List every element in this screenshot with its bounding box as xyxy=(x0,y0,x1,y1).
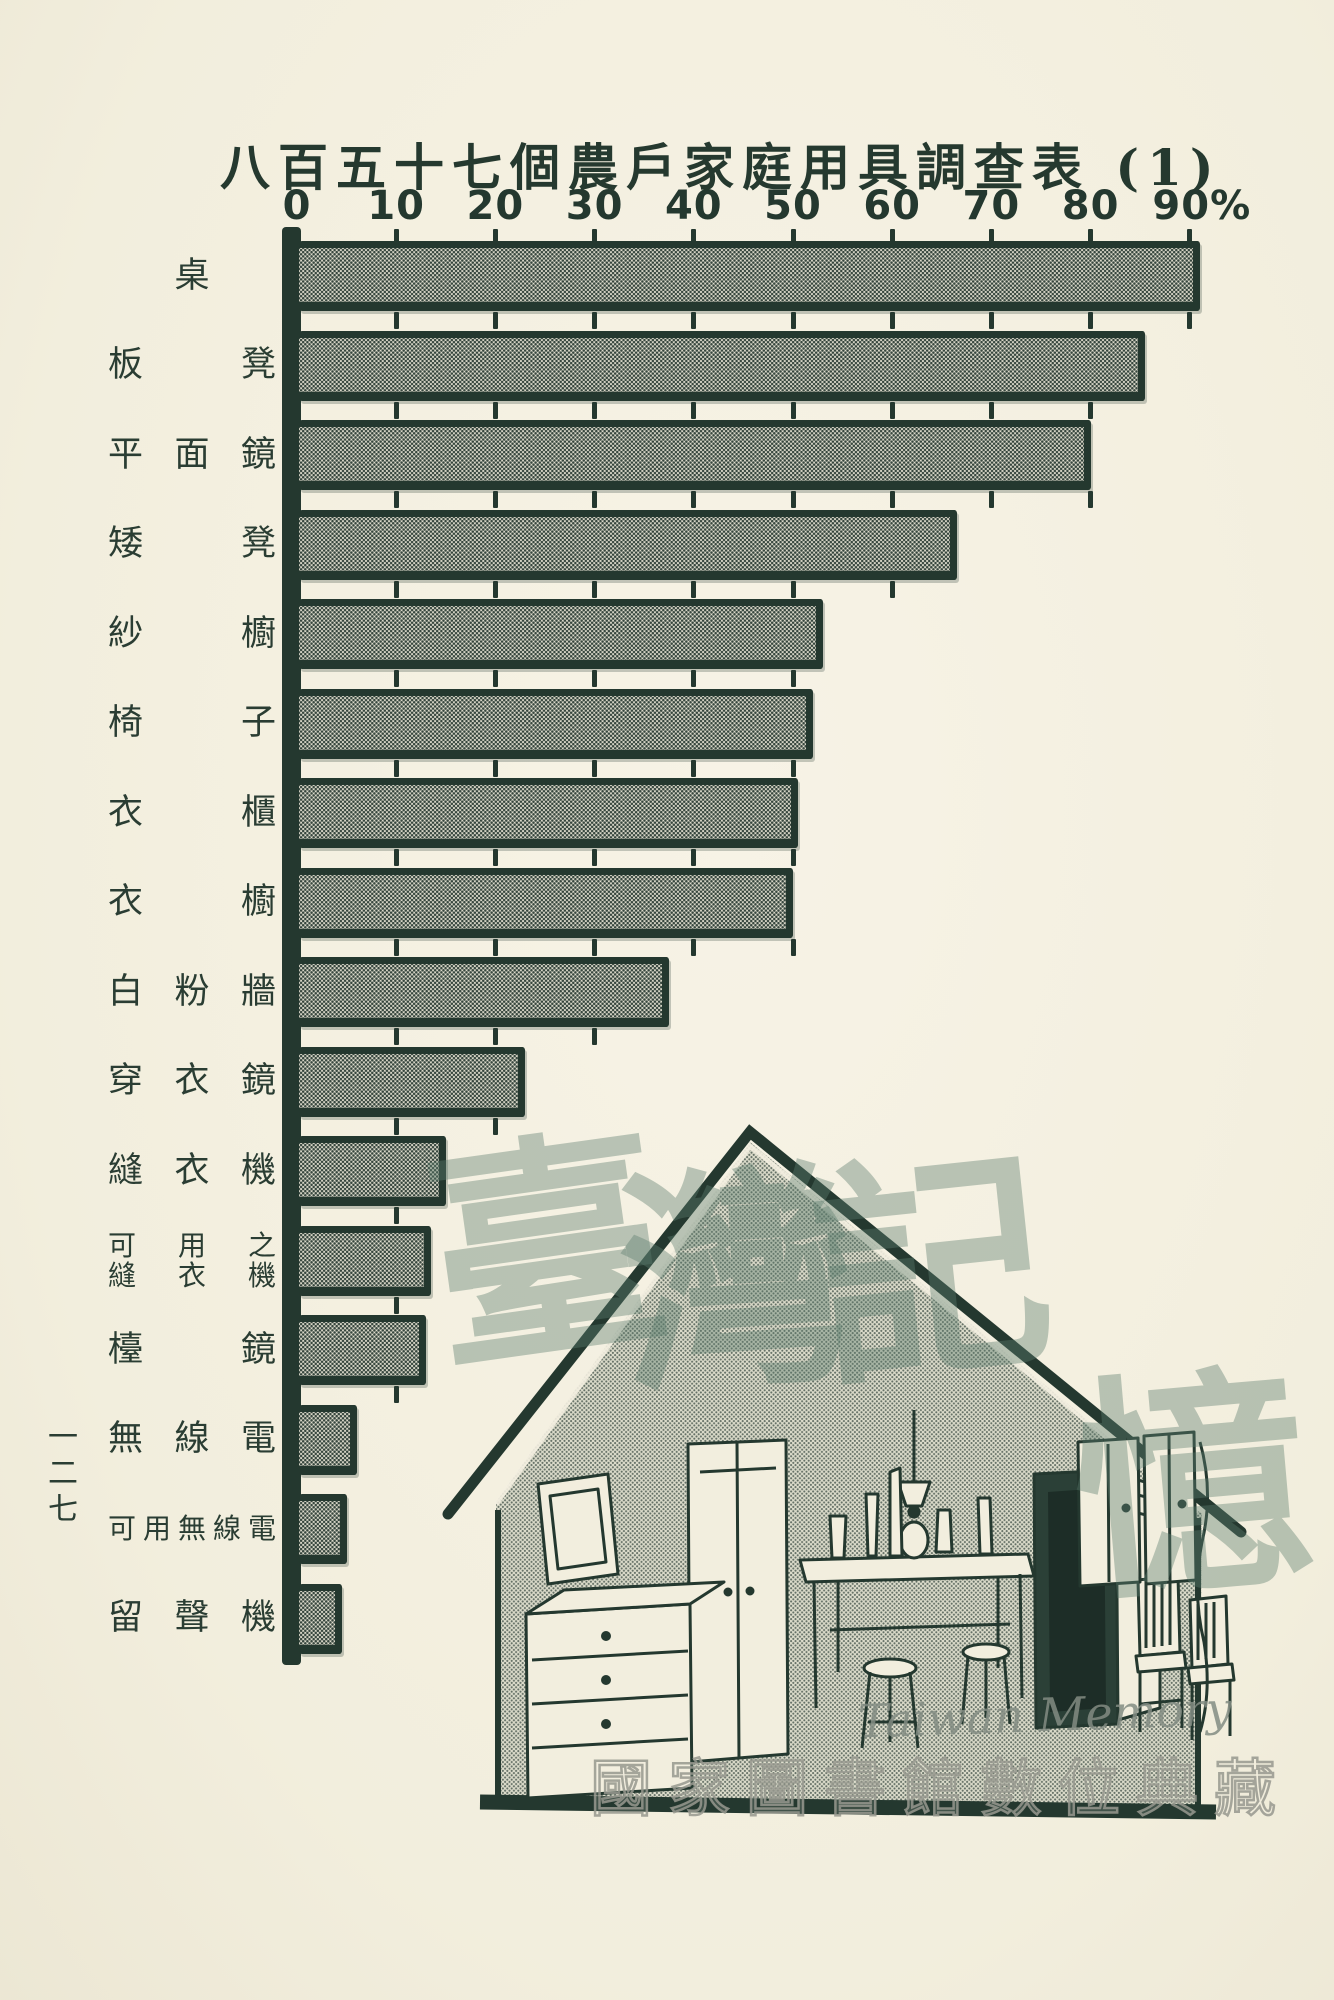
gap-tick xyxy=(493,1028,498,1045)
label-char: 機 xyxy=(248,1261,276,1290)
label-char: 機 xyxy=(241,1153,276,1190)
label-char: 凳 xyxy=(241,347,276,384)
bar-category-label: 縫衣機 xyxy=(108,1136,276,1206)
gap-tick xyxy=(493,402,498,419)
label-char: 縫 xyxy=(108,1153,143,1190)
gap-tick xyxy=(691,760,696,777)
label-char: 櫥 xyxy=(241,884,276,921)
label-char: 平 xyxy=(108,437,143,474)
gap-tick xyxy=(394,402,399,419)
label-char: 鏡 xyxy=(241,1332,276,1369)
label-char: 電 xyxy=(248,1514,276,1543)
gap-tick xyxy=(791,670,796,687)
gap-tick xyxy=(691,939,696,956)
gap-tick xyxy=(1088,312,1093,329)
axis-tick-label: 50 xyxy=(764,183,822,229)
label-char: 櫃 xyxy=(241,795,276,832)
bar-category-label: 矮凳 xyxy=(108,510,276,580)
axis-tick-label: 0 xyxy=(283,183,312,229)
gap-tick xyxy=(890,402,895,419)
gap-tick xyxy=(493,581,498,598)
label-char: 線 xyxy=(174,1421,209,1458)
gap-tick xyxy=(394,849,399,866)
label-char: 機 xyxy=(241,1600,276,1637)
axis-tick-label: 30 xyxy=(566,183,624,229)
label-char: 白 xyxy=(108,974,143,1011)
page-number-char: 一 xyxy=(48,1420,78,1456)
label-char: 椅 xyxy=(108,705,143,742)
bar-category-label: 板凳 xyxy=(108,331,276,401)
label-char: 櫥 xyxy=(241,616,276,653)
gap-tick xyxy=(394,1207,399,1224)
gap-tick xyxy=(592,1028,597,1045)
gap-tick xyxy=(493,939,498,956)
bar-category-label: 桌 xyxy=(108,241,276,311)
label-char: 衣 xyxy=(108,795,143,832)
label-char: 凳 xyxy=(241,526,276,563)
bar xyxy=(299,510,957,580)
wardrobe-panels xyxy=(1078,1432,1196,1586)
bar-category-label: 白粉牆 xyxy=(108,957,276,1027)
page-number-char: 二 xyxy=(48,1456,78,1492)
gap-tick xyxy=(394,939,399,956)
house-floor xyxy=(480,1802,1216,1812)
label-char: 粉 xyxy=(174,974,209,1011)
bar xyxy=(299,689,813,759)
bar-category-label: 可用無線電 xyxy=(108,1494,276,1564)
label-char: 桌 xyxy=(174,258,209,295)
bar-category-label: 平面鏡 xyxy=(108,420,276,490)
gap-tick xyxy=(791,491,796,508)
label-char: 板 xyxy=(108,347,143,384)
gap-tick xyxy=(592,670,597,687)
bar xyxy=(299,1405,357,1475)
bar xyxy=(299,868,793,938)
gap-tick xyxy=(493,491,498,508)
label-char: 用 xyxy=(143,1514,171,1543)
scanned-document-page: 八百五十七個農戶家庭用具調查表 (1) 0102030405060708090%… xyxy=(0,0,1334,2000)
label-char: 縫 xyxy=(108,1261,136,1290)
label-char: 衣 xyxy=(174,1063,209,1100)
gap-tick xyxy=(989,312,994,329)
axis-tick-label: 60 xyxy=(863,183,921,229)
label-char: 鏡 xyxy=(241,437,276,474)
farmhouse-interior-illustration xyxy=(438,1112,1263,1827)
gap-tick xyxy=(1088,402,1093,419)
bar xyxy=(299,1584,342,1654)
bar xyxy=(299,1226,431,1296)
label-char: 衣 xyxy=(178,1261,206,1290)
axis-tick-label: 20 xyxy=(467,183,525,229)
bar-category-label: 留聲機 xyxy=(108,1584,276,1654)
gap-tick xyxy=(493,312,498,329)
label-char: 矮 xyxy=(108,526,143,563)
gap-tick xyxy=(691,670,696,687)
bar-category-label: 穿衣鏡 xyxy=(108,1047,276,1117)
gap-tick xyxy=(592,402,597,419)
gap-tick xyxy=(1088,491,1093,508)
gap-tick xyxy=(394,1118,399,1135)
label-char: 聲 xyxy=(174,1600,209,1637)
gap-tick xyxy=(989,402,994,419)
gap-tick xyxy=(493,670,498,687)
gap-tick xyxy=(791,581,796,598)
gap-tick xyxy=(394,491,399,508)
gap-tick xyxy=(592,939,597,956)
bar xyxy=(299,957,669,1027)
axis-tick-label: 70 xyxy=(963,183,1021,229)
gap-tick xyxy=(691,312,696,329)
gap-tick xyxy=(493,849,498,866)
bar-category-label: 可用之縫衣機 xyxy=(108,1226,276,1296)
label-char: 用 xyxy=(178,1231,206,1260)
label-char: 子 xyxy=(241,705,276,742)
gap-tick xyxy=(493,760,498,777)
bar xyxy=(299,599,823,669)
page-number: 一 二 七 xyxy=(48,1420,78,1528)
gap-tick xyxy=(394,1297,399,1314)
label-char: 穿 xyxy=(108,1063,143,1100)
gap-tick xyxy=(691,581,696,598)
gap-tick xyxy=(592,491,597,508)
bar-category-label: 檯鏡 xyxy=(108,1315,276,1385)
gap-tick xyxy=(394,312,399,329)
label-char: 之 xyxy=(248,1231,276,1260)
bar xyxy=(299,1494,347,1564)
label-char: 衣 xyxy=(174,1153,209,1190)
axis-tick-label: 10 xyxy=(367,183,425,229)
gap-tick xyxy=(890,491,895,508)
axis-tick-label: 90% xyxy=(1152,183,1251,229)
gap-tick xyxy=(592,312,597,329)
gap-tick xyxy=(394,581,399,598)
gap-tick xyxy=(791,312,796,329)
bar xyxy=(299,1047,525,1117)
gap-tick xyxy=(394,670,399,687)
label-char: 牆 xyxy=(241,974,276,1011)
gap-tick xyxy=(791,849,796,866)
bar-category-label: 衣櫥 xyxy=(108,868,276,938)
gap-tick xyxy=(791,402,796,419)
gap-tick xyxy=(791,939,796,956)
label-char: 留 xyxy=(108,1600,143,1637)
gap-tick xyxy=(394,760,399,777)
label-char: 可 xyxy=(108,1231,136,1260)
page-number-char: 七 xyxy=(48,1492,78,1528)
label-char: 電 xyxy=(241,1421,276,1458)
label-char: 無 xyxy=(178,1514,206,1543)
gap-tick xyxy=(691,402,696,419)
gap-tick xyxy=(691,849,696,866)
bar-category-label: 紗櫥 xyxy=(108,599,276,669)
bar xyxy=(299,1315,426,1385)
bar xyxy=(299,420,1091,490)
gap-tick xyxy=(791,760,796,777)
bar xyxy=(299,331,1145,401)
gap-tick xyxy=(1187,312,1192,329)
label-char: 衣 xyxy=(108,884,143,921)
bar xyxy=(299,778,798,848)
label-char: 無 xyxy=(108,1421,143,1458)
gap-tick xyxy=(691,491,696,508)
bar-category-label: 椅子 xyxy=(108,689,276,759)
bar xyxy=(299,1136,446,1206)
gap-tick xyxy=(592,849,597,866)
bar xyxy=(299,241,1200,311)
gap-tick xyxy=(394,1386,399,1403)
gap-tick xyxy=(394,1028,399,1045)
gap-tick xyxy=(890,581,895,598)
label-char: 紗 xyxy=(108,616,143,653)
bar-category-label: 無線電 xyxy=(108,1405,276,1475)
axis-tick-label: 80 xyxy=(1062,183,1120,229)
label-char: 鏡 xyxy=(241,1063,276,1100)
label-char: 面 xyxy=(174,437,209,474)
bar-category-label: 衣櫃 xyxy=(108,778,276,848)
axis-tick-label: 40 xyxy=(665,183,723,229)
label-char: 線 xyxy=(213,1514,241,1543)
gap-tick xyxy=(989,491,994,508)
gap-tick xyxy=(592,581,597,598)
gap-tick xyxy=(592,760,597,777)
gap-tick xyxy=(890,312,895,329)
label-char: 檯 xyxy=(108,1332,143,1369)
label-char: 可 xyxy=(108,1514,136,1543)
